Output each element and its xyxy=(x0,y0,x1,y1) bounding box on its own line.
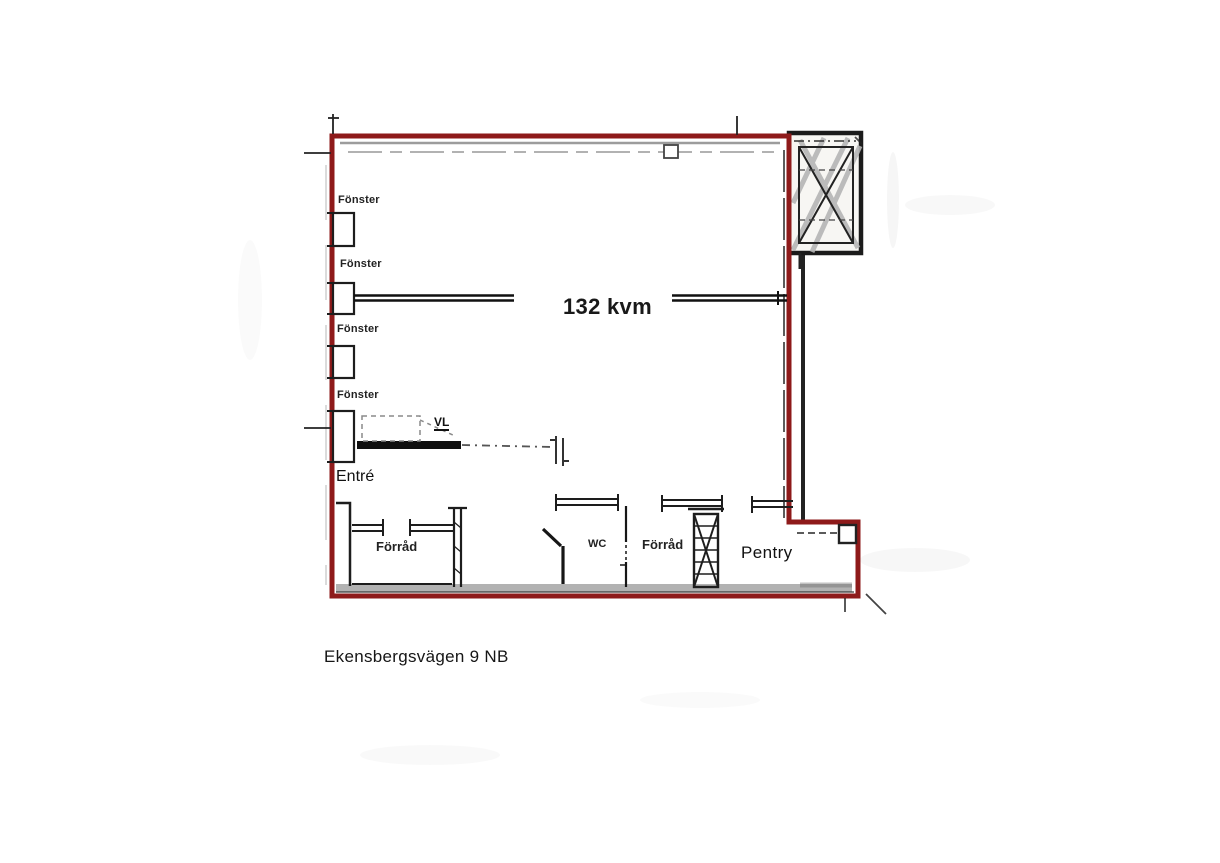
room-label-wc: WC xyxy=(588,539,606,550)
room-label-storage2: Förråd xyxy=(642,538,683,551)
address-caption: Ekensbergsvägen 9 NB xyxy=(324,648,509,665)
window-marker xyxy=(333,283,354,314)
vent-label: VL xyxy=(434,416,449,431)
entrance-wall xyxy=(357,416,569,466)
floorplan-page: Fönster Fönster Fönster Fönster Entré 13… xyxy=(0,0,1220,863)
room-label-pantry: Pentry xyxy=(741,544,793,561)
window-label-3: Fönster xyxy=(337,324,379,335)
floorplan-drawing xyxy=(0,0,1220,863)
window-label-2: Fönster xyxy=(340,259,382,270)
room-label-storage1: Förråd xyxy=(376,540,417,553)
entry-door-marker xyxy=(333,411,354,462)
wall-smudges xyxy=(326,143,854,592)
bottom-strip-walls xyxy=(556,494,793,513)
area-label: 132 kvm xyxy=(563,296,652,318)
entrance-label: Entré xyxy=(336,469,374,485)
stair-shaft xyxy=(789,133,861,269)
pantry-bay xyxy=(797,525,856,543)
window-marker xyxy=(333,213,354,246)
top-wall-junction-box xyxy=(664,145,678,158)
window-label-1: Fönster xyxy=(338,195,380,206)
window-label-4: Fönster xyxy=(337,390,379,401)
wc-walls xyxy=(543,506,626,587)
duct-shaft xyxy=(688,509,724,587)
window-marker xyxy=(333,346,354,378)
